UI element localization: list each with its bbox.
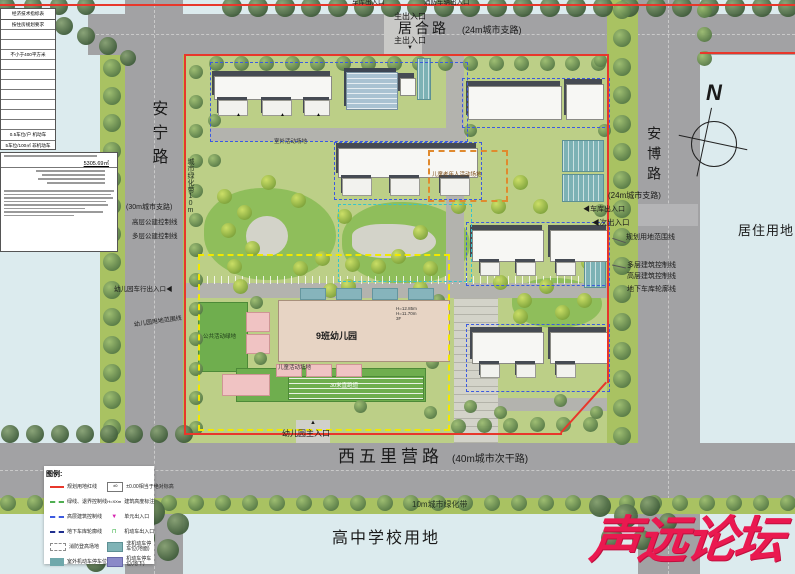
belt-left-inner-name: 城市绿化带 — [187, 158, 194, 193]
tree — [513, 309, 528, 324]
table-bar — [4, 155, 97, 157]
indicator-row: 按住房规划要求 — [1, 20, 55, 30]
indicator-row — [1, 90, 55, 100]
legend-item: ▼单元出入口 — [103, 509, 152, 524]
tree — [55, 17, 73, 35]
entrance-garage-right: ◀车库出入口 — [583, 206, 625, 214]
top-road-name: 居合路 — [398, 20, 449, 36]
control-left-multi: 多层公建控制线 — [132, 233, 178, 240]
tree — [593, 0, 613, 17]
tree — [217, 189, 232, 204]
area-east-label: 居住用地 — [738, 224, 794, 239]
legend-item: ±0±0.00相当于绝对标高 — [103, 479, 152, 494]
tree — [780, 495, 795, 511]
right-road-spec: (24m城市支路) — [608, 191, 661, 200]
green-dash-swatch — [50, 501, 64, 503]
note-line — [4, 208, 85, 210]
tree — [513, 175, 528, 190]
legend-item: 高层建筑控制线 — [46, 509, 103, 524]
watermark: 声远论坛 — [587, 512, 785, 570]
legend-label: 高层建筑控制线 — [67, 513, 102, 520]
entrance-garage-top: 车库出入口 — [352, 0, 385, 6]
legend-label: 机动车出入口 — [124, 528, 154, 535]
tree — [484, 495, 500, 511]
entrance-main-top-lower: 主出入口 — [394, 36, 426, 45]
control-line-cluster-f — [466, 222, 610, 286]
legend-item: 室外机动车停车位 — [46, 554, 103, 569]
tree — [77, 0, 95, 15]
vehicle-entry-icon: ⊓ — [107, 528, 121, 536]
tree — [77, 27, 95, 45]
entrance-secondary-right: ◀次出入口 — [592, 219, 630, 228]
entrance-kg-vehicle-text: 幼儿园车行出入口 — [114, 286, 166, 293]
bike-shed-1 — [562, 140, 604, 172]
tree — [189, 65, 203, 79]
note-line — [4, 194, 111, 196]
track-label: 30米直跑道 — [330, 383, 358, 389]
control-right-boundary: 规划用地范围线 — [626, 234, 675, 242]
unit-entry-icon: ▲ — [316, 112, 321, 118]
blue-dash-swatch — [50, 516, 64, 518]
entrance-kg-main: 幼儿园主入口 — [282, 429, 330, 438]
entrance-secondary-right-text: 次出入口 — [600, 218, 630, 227]
gray-dash-box-swatch — [50, 543, 66, 551]
teal-swatch — [107, 542, 123, 552]
tree — [296, 495, 312, 511]
area-south-label: 高中学校用地 — [332, 530, 440, 548]
tree — [540, 56, 555, 71]
public-green-label: 公共活动绿地 — [203, 334, 236, 340]
bottom-road-spec: (40m城市次干路) — [452, 454, 528, 466]
kg-floors: 3F — [396, 316, 440, 321]
red-boundary-top — [184, 54, 608, 56]
arrow-left-icon: ◀ — [583, 206, 590, 213]
indicator-row — [1, 30, 55, 40]
kids-elderly-label: 儿童老年人活动场地 — [432, 172, 482, 178]
tree — [26, 425, 44, 443]
unit-entry-icon: ▼ — [107, 513, 121, 521]
tree — [752, 0, 772, 17]
outdoor-activity-label: 室外活动场地 — [274, 139, 307, 145]
note-line — [4, 190, 114, 192]
red-line-swatch — [50, 486, 64, 488]
control-line-cluster-c — [462, 78, 610, 128]
control-right-multi: 多层建筑控制线 — [627, 262, 676, 270]
note-line — [4, 211, 103, 213]
unit-entry-icon: ▲ — [236, 112, 241, 118]
indicator-row — [1, 100, 55, 110]
red-boundary-bottom — [184, 433, 562, 435]
tree — [167, 513, 189, 535]
tree — [503, 418, 518, 433]
tree — [489, 56, 504, 71]
tree — [577, 293, 592, 308]
tree — [555, 305, 570, 320]
control-line-cluster-g — [466, 324, 610, 392]
tree — [323, 495, 339, 511]
tree — [565, 495, 581, 511]
tree — [157, 539, 179, 561]
legend-label: ±0.00相当于绝对标高 — [126, 483, 173, 490]
tree — [76, 425, 94, 443]
kg-boundary-dashed — [198, 254, 450, 431]
control-left-high: 高层公建控制线 — [132, 219, 178, 226]
kids-play-label: 儿童活动场地 — [278, 365, 311, 371]
control-right-garage: 地下车库轮廓线 — [627, 286, 676, 294]
entrance-fire-top: 消防车辆出入口 — [424, 0, 470, 6]
tree — [590, 406, 603, 419]
tree — [464, 400, 477, 413]
compass-north-label: N — [706, 80, 722, 105]
elevation-box-icon: ±0 — [107, 482, 123, 492]
right-secondary-driveway — [638, 204, 698, 226]
entrance-kg-vehicle: 幼儿园车行出入口◀ — [114, 286, 173, 293]
purple-swatch — [107, 557, 123, 567]
tree — [103, 59, 121, 77]
area-table: 5305.69㎡ — [0, 152, 118, 252]
teal-bar-swatch — [50, 558, 64, 566]
tree — [261, 175, 276, 190]
tree — [51, 425, 69, 443]
tree — [511, 495, 527, 511]
entrance-garage-right-text: 车库出入口 — [590, 206, 625, 213]
tree — [613, 427, 631, 445]
indicator-row: 不小于400平方米 — [1, 50, 55, 60]
legend: 图例: 规划用地红线 绿线、退界控制线 高层建筑控制线 地下车库轮廓线 消防登高… — [44, 466, 154, 564]
tree — [291, 193, 306, 208]
bottom-road-name: 西五里营路 — [338, 447, 443, 467]
control-line-cluster-a — [210, 62, 468, 142]
tree — [103, 253, 121, 271]
legend-label: 消防登高场地 — [69, 543, 99, 550]
arrow-up-icon: ▲ — [310, 420, 316, 427]
tree — [565, 56, 580, 71]
tree — [613, 399, 631, 417]
legend-label: 建筑高度标注 — [124, 498, 154, 505]
tree — [1, 425, 19, 443]
table-bar — [47, 182, 105, 184]
note-line — [4, 204, 108, 206]
entrance-main-top-upper: 主出入口 — [394, 12, 426, 21]
tree — [237, 205, 252, 220]
tree — [269, 495, 285, 511]
legend-label: 机动车停车位(地下) — [126, 557, 152, 567]
kindergarten-note: H=12.85m H=11.70m 3F — [396, 306, 440, 322]
tree — [517, 293, 532, 308]
indicator-table-title: 经济技术指标表 — [1, 9, 55, 20]
indicator-row: 0.5车位/户 机动车 — [1, 130, 55, 141]
kindergarten-name: 9班幼儿园 — [316, 331, 357, 341]
area-value: 5305.69㎡ — [1, 159, 117, 168]
tree — [350, 495, 366, 511]
indicator-row — [1, 80, 55, 90]
tree — [477, 418, 492, 433]
tree — [103, 364, 121, 382]
tree — [613, 58, 631, 76]
table-bar — [38, 178, 105, 180]
indicator-table: 经济技术指标表 按住房规划要求 不小于400平方米 0.5车位/户 机动车 5车… — [0, 8, 56, 150]
indicator-row: 5车位/100㎡ 非机动车 — [1, 141, 55, 151]
legend-item: 绿线、退界控制线 — [46, 494, 103, 509]
note-line — [4, 197, 113, 199]
legend-item: 地下车库轮廓线 — [46, 524, 103, 539]
tree — [120, 50, 136, 66]
tree — [554, 394, 567, 407]
tree — [753, 495, 769, 511]
red-line-east-plot — [700, 52, 795, 54]
tree — [0, 495, 16, 511]
tree — [103, 336, 121, 354]
legend-label: 非机动车停车位(地面) — [126, 542, 152, 552]
red-line-top-plot — [0, 4, 795, 6]
compass-circle — [691, 121, 737, 167]
indicator-row — [1, 110, 55, 120]
navy-dash-swatch — [50, 531, 64, 533]
height-text-icon: H=XXm — [107, 498, 121, 506]
legend-label: 单元出入口 — [124, 513, 149, 520]
tree — [533, 199, 548, 214]
indicator-row — [1, 70, 55, 80]
tree — [451, 419, 466, 434]
tree — [27, 495, 43, 511]
tree — [189, 95, 203, 109]
indicator-row — [1, 60, 55, 70]
table-bar — [42, 174, 106, 176]
site-plan-canvas: ▲ ▲ ▲ N 居合路 (24m城市支路) 主出入口 主出入口 ▼ 车库出入口 … — [0, 0, 795, 574]
right-road-name: 安博路 — [646, 126, 662, 186]
belt-south-label: 10m城市绿化带 — [412, 500, 468, 509]
arrow-left-icon: ◀ — [592, 218, 600, 227]
legend-item: ⊓机动车出入口 — [103, 524, 152, 539]
legend-item: 机动车停车位(地下) — [103, 554, 152, 569]
tree — [530, 417, 545, 432]
tree — [221, 223, 236, 238]
legend-label: 室外机动车停车位 — [67, 558, 107, 565]
indicator-row — [1, 120, 55, 130]
tree — [494, 406, 507, 419]
tree — [514, 56, 529, 71]
tree — [583, 417, 598, 432]
top-road-spec: (24m城市支路) — [462, 25, 522, 35]
note-line — [4, 201, 106, 203]
arrow-left-icon: ◀ — [166, 286, 173, 293]
unit-entry-icon: ▲ — [280, 112, 285, 118]
tree — [538, 495, 554, 511]
tree — [242, 495, 258, 511]
control-right-high: 高层建筑控制线 — [627, 273, 676, 281]
tree — [646, 0, 666, 17]
legend-item: 消防登高场地 — [46, 539, 103, 554]
red-boundary-left — [184, 54, 186, 433]
legend-title: 图例: — [46, 469, 152, 479]
legend-item: H=XXm建筑高度标注 — [103, 494, 152, 509]
tree — [613, 115, 631, 133]
table-bar — [36, 170, 106, 172]
legend-item: 非机动车停车位(地面) — [103, 539, 152, 554]
tree — [103, 87, 121, 105]
tree — [613, 342, 631, 360]
tree — [377, 495, 393, 511]
belt-left-inner-label: 城市绿化带10m — [186, 158, 194, 214]
tree — [697, 27, 712, 42]
legend-label: 规划用地红线 — [67, 483, 97, 490]
belt-left-inner-width: 10m — [187, 193, 194, 214]
bike-shed-2 — [562, 174, 604, 202]
note-line — [4, 215, 74, 217]
legend-label: 地下车库轮廓线 — [67, 528, 102, 535]
tree — [613, 143, 631, 161]
legend-item: 规划用地红线 — [46, 479, 103, 494]
left-road-name: 安宁路 — [148, 100, 166, 172]
legend-label: 绿线、退界控制线 — [67, 498, 107, 505]
indicator-row — [1, 40, 55, 50]
compass: N — [676, 80, 766, 190]
tree — [99, 37, 117, 55]
arrow-down-icon: ▼ — [407, 45, 413, 52]
tree — [208, 154, 221, 167]
left-road-spec: (30m城市支路) — [126, 204, 172, 212]
tree — [778, 0, 795, 17]
